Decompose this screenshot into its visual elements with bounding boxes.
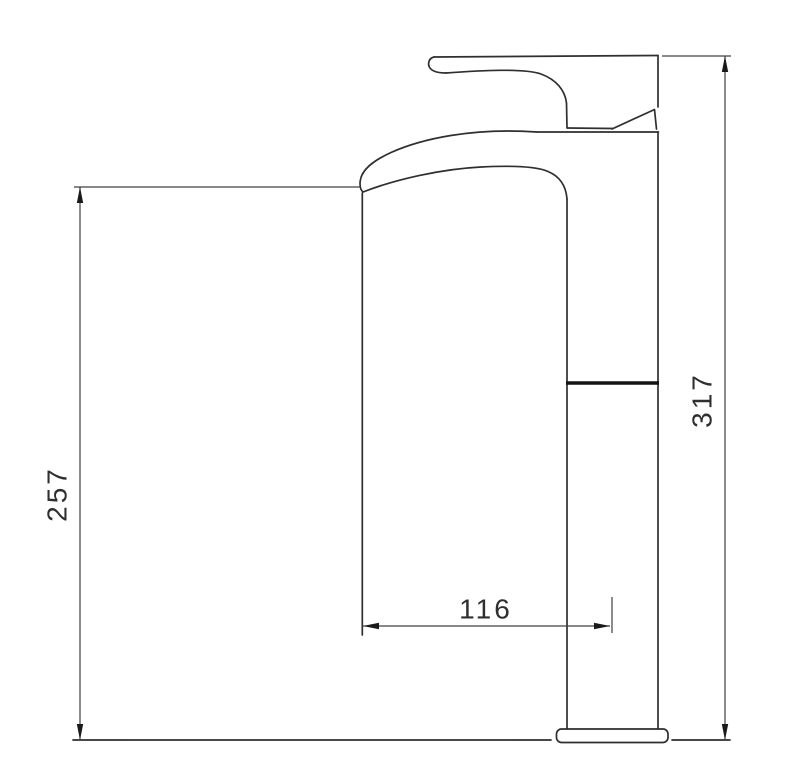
handle-pivot-wedge [612, 110, 657, 130]
arrow-down-icon [722, 724, 728, 740]
handle-lever-underside [446, 70, 567, 127]
arrow-right-icon [594, 623, 610, 629]
spout-inner-curve [363, 166, 567, 199]
arrow-left-icon [363, 623, 379, 629]
handle-neck-bottom [567, 128, 613, 129]
arrow-down-icon [77, 724, 83, 740]
arrow-up-icon [722, 56, 728, 72]
faucet-dimension-drawing: 257 317 116 [0, 0, 800, 777]
dimension-label-spout-height: 257 [42, 466, 73, 522]
arrow-up-icon [77, 187, 83, 203]
spout-outer-curve [360, 131, 537, 192]
dimension-total-height: 317 [662, 56, 731, 740]
handle-lever-top-edge [434, 56, 658, 58]
dimension-label-total-height: 317 [687, 372, 718, 428]
base-plate [557, 729, 669, 743]
dimension-label-spout-reach: 116 [459, 594, 513, 625]
dimension-spout-height: 257 [42, 187, 361, 740]
handle-lever-tip [429, 57, 446, 73]
technical-drawing-canvas: 257 317 116 [0, 0, 800, 777]
dimension-spout-reach: 116 [362, 594, 612, 634]
faucet-outline [73, 56, 730, 743]
